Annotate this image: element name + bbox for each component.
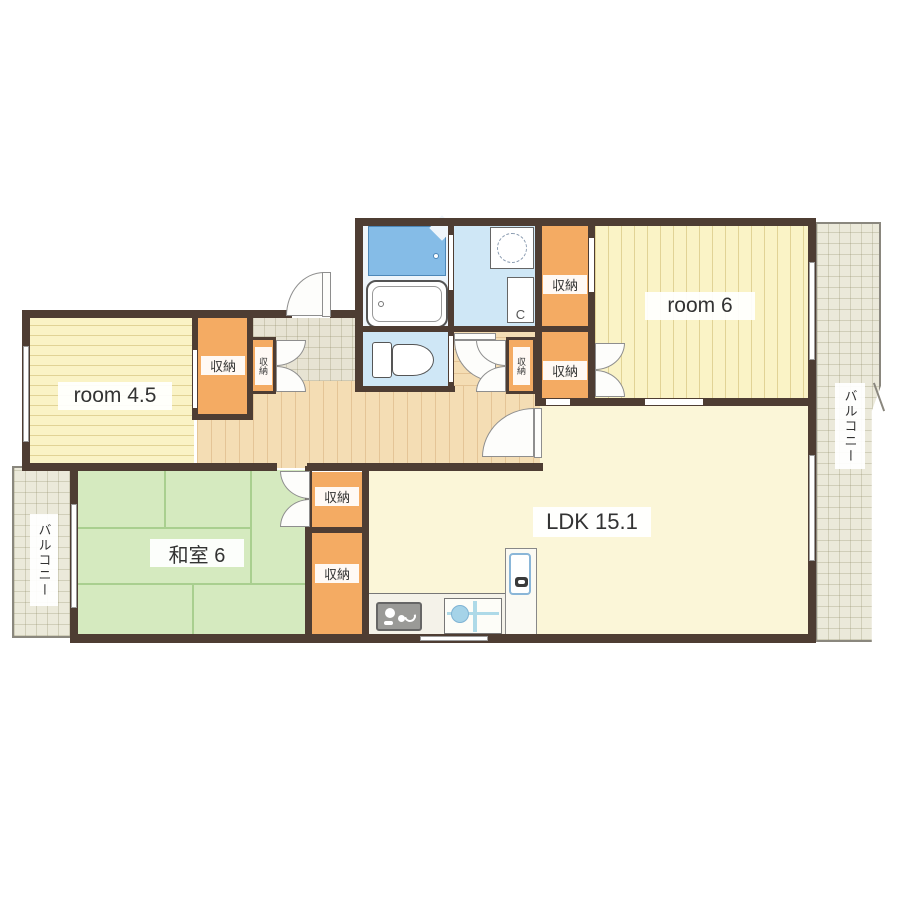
wall (363, 326, 448, 332)
floor-plan-canvas: C (0, 0, 900, 900)
tatami-line (164, 470, 166, 527)
wall-opening (546, 399, 570, 405)
washitsu-label: 和室 6 (150, 539, 244, 567)
room-4-5-label: room 4.5 (58, 382, 172, 410)
storage-label: 収納 (543, 361, 587, 380)
sink-basin (451, 605, 469, 623)
kitchen-sink (444, 598, 502, 634)
fridge-handle (515, 577, 528, 587)
bathtub (366, 280, 448, 328)
wall (247, 310, 253, 420)
washbasin: C (507, 277, 534, 323)
wall (355, 218, 363, 392)
refrigerator (505, 548, 537, 640)
wall (22, 463, 277, 471)
storage-label: 収納 (201, 356, 245, 375)
entry-door-arc (286, 272, 324, 316)
entry-door-leaf (322, 272, 331, 317)
storage-label: 収納 (543, 275, 587, 294)
wall (355, 218, 815, 226)
wall (330, 310, 363, 318)
storage-label-small: 収納 (513, 347, 530, 385)
toilet-bowl (392, 344, 434, 376)
window (71, 504, 77, 608)
washroom-door-leaf (454, 333, 496, 340)
sliding-door-line (589, 238, 594, 292)
storage-label: 収納 (315, 564, 359, 583)
wall (542, 326, 588, 332)
wall (312, 527, 362, 533)
door-opening (449, 336, 453, 382)
closet-washitsu-bottom (312, 533, 362, 635)
wall (448, 326, 542, 332)
ldk-door-leaf (534, 408, 542, 458)
tatami-line (78, 527, 250, 529)
window (809, 262, 815, 360)
shower-handle-dot (433, 253, 439, 259)
washing-machine-pan (490, 227, 534, 269)
storage-label-small: 収納 (255, 347, 272, 385)
wall (307, 463, 543, 471)
bathtub-drain-dot (378, 301, 384, 307)
stove (376, 602, 422, 631)
balcony-left-label: バルコニー (30, 514, 58, 606)
door-opening (449, 235, 453, 290)
room-6-label: room 6 (645, 292, 755, 320)
tatami-line (250, 470, 252, 583)
wall (535, 222, 542, 402)
storage-label: 収納 (315, 487, 359, 506)
balcony-right-label: バルコニー (835, 383, 865, 469)
wall-opening (645, 399, 703, 405)
window (23, 346, 29, 442)
ldk-label: LDK 15.1 (533, 507, 651, 537)
toilet-tank (372, 342, 392, 378)
wall (362, 466, 369, 641)
sliding-door-line (193, 350, 197, 408)
wall (355, 386, 455, 392)
tatami-line (192, 583, 194, 636)
window (809, 455, 815, 561)
wall (192, 414, 253, 420)
window (420, 636, 488, 641)
